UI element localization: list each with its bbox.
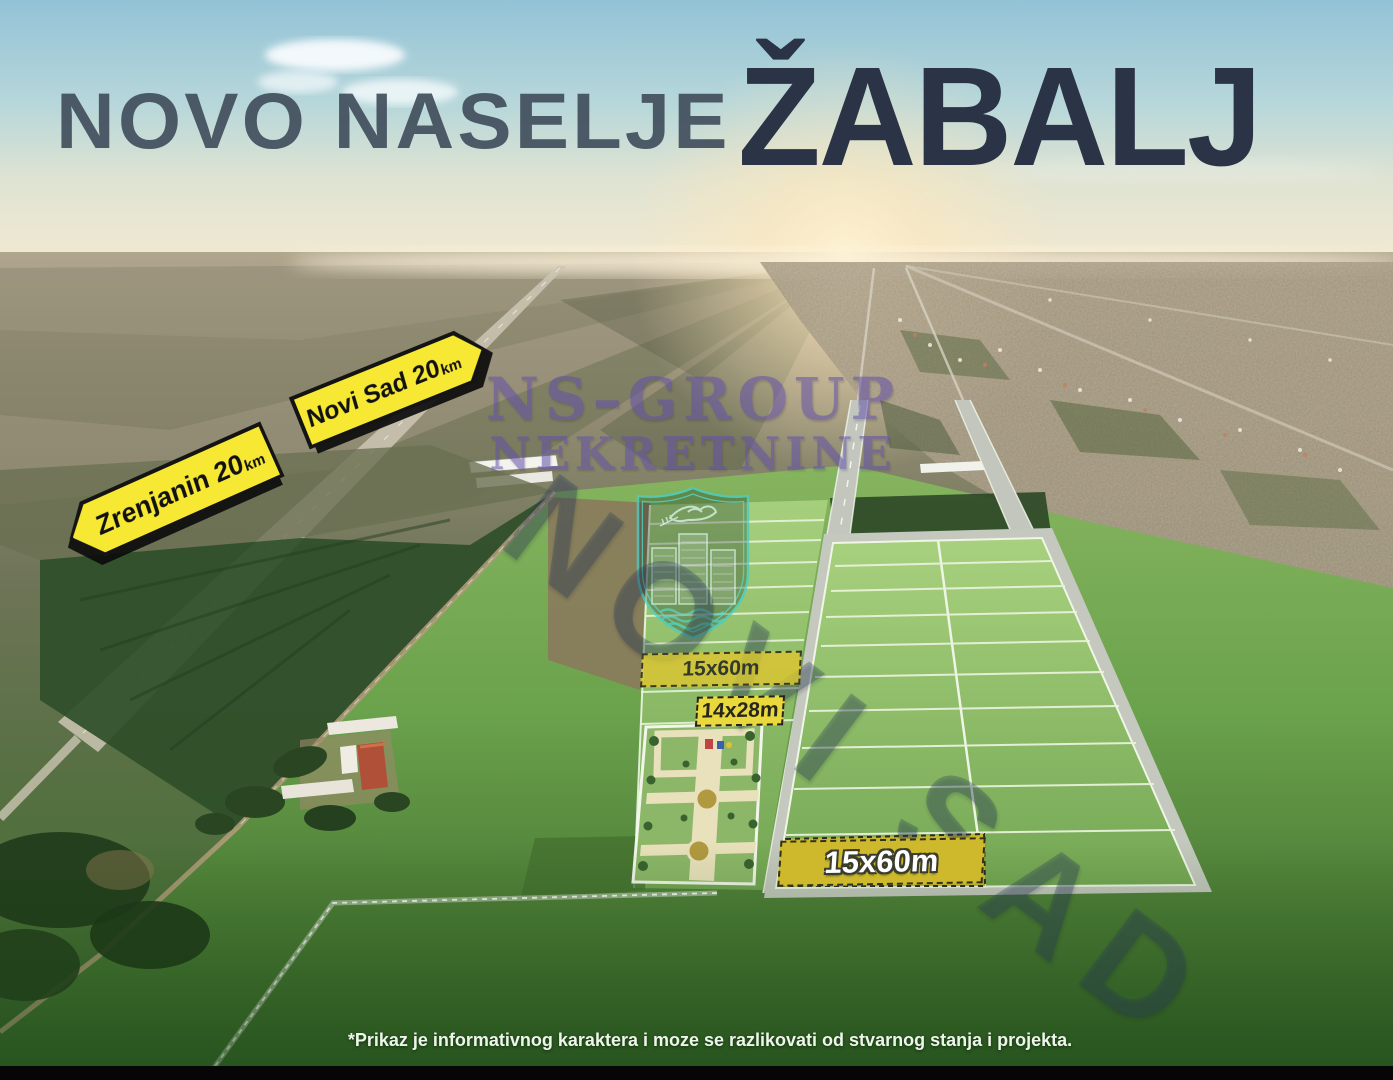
farm-building [340,745,358,774]
company-watermark: NS–GROUP NEKRETNINE [478,370,908,476]
plot-size-label-park: 14x28m [695,695,785,727]
zrenjanin-sign-unit: km [242,450,267,475]
red-roof-building [357,742,388,790]
page-title-prefix: NOVO NASELJE [56,81,731,160]
cloud [265,39,405,71]
promo-poster: NOVO NASELJE ŽABALJ Zrenjanin 20km Novi … [0,0,1393,1080]
plot-size-label-strip: 15x60m [640,651,802,688]
plot-size-label-highlight: 15x60m [777,837,986,887]
novi-sad-sign-unit: km [439,354,464,379]
company-name: NS–GROUP [478,370,908,428]
bottom-letterbox-bar [0,1066,1393,1080]
disclaimer-text: *Prikaz je informativnog karaktera i moz… [340,1030,1080,1051]
page-title-emphasis: ŽABALJ [738,46,1260,187]
company-subtitle: NEKRETNINE [478,431,908,476]
